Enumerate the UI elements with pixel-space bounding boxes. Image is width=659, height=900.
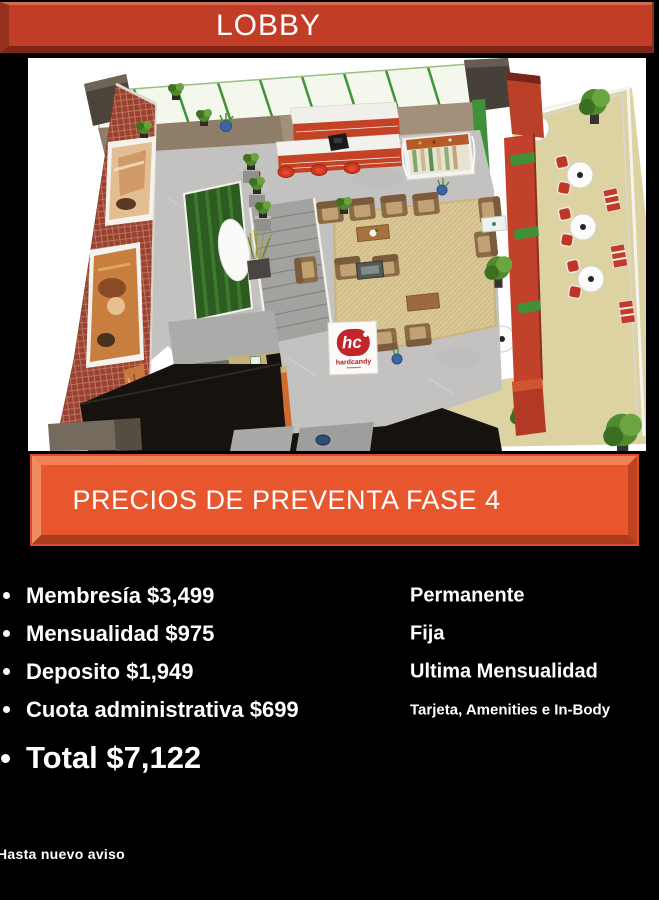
pricing-row: Membresía $3,499 Permanente	[0, 577, 659, 615]
pricing-item-label: Cuota administrativa $699	[26, 697, 299, 723]
subtitle-banner: PRECIOS DE PREVENTA FASE 4	[32, 456, 637, 544]
wall-picture-spa	[86, 242, 144, 368]
logo-brand-text: hardcandy	[336, 358, 372, 366]
pricing-row: Mensualidad $975 Fija	[0, 615, 659, 653]
pricing-total-row: Total $7,122	[0, 735, 659, 781]
side-table	[481, 216, 506, 232]
reception-monitor	[250, 356, 261, 365]
bullet-icon	[3, 706, 10, 713]
pricing-item-label: Deposito $1,949	[26, 659, 194, 685]
title-banner-label: LOBBY	[0, 5, 590, 46]
floorplan-image: hc hardcandy	[28, 58, 646, 451]
pricing-item-note: Tarjeta, Amenities e In-Body	[410, 702, 610, 719]
pricing-item-note: Ultima Mensualidad	[410, 661, 598, 684]
wall-picture-massage	[105, 136, 156, 226]
title-banner: LOBBY	[0, 2, 652, 53]
coffee-table	[356, 224, 389, 241]
subtitle-banner-label: PRECIOS DE PREVENTA FASE 4	[0, 465, 580, 535]
pricing-row: Deposito $1,949 Ultima Mensualidad	[0, 653, 659, 691]
pricing-item-note: Permanente	[410, 585, 525, 608]
pricing-item-label: Mensualidad $975	[26, 621, 214, 647]
pricing-row: Cuota administrativa $699 Tarjeta, Ameni…	[0, 691, 659, 729]
bullet-icon	[3, 630, 10, 637]
footnote: Hasta nuevo aviso	[0, 846, 125, 862]
pricing-total-label: Total $7,122	[26, 740, 201, 776]
brand-logo: hc hardcandy	[328, 321, 378, 375]
logo-monogram: hc	[342, 333, 363, 353]
bullet-icon	[3, 592, 10, 599]
display-case	[402, 132, 475, 180]
bullet-icon	[1, 754, 10, 763]
bullet-icon	[3, 668, 10, 675]
coffee-table	[406, 293, 439, 311]
floorplan-svg: hc hardcandy	[28, 58, 646, 451]
pricing-item-note: Fija	[410, 623, 444, 646]
pricing-list: Membresía $3,499 Permanente Mensualidad …	[0, 577, 659, 781]
pricing-item-label: Membresía $3,499	[26, 583, 214, 609]
glass-table	[356, 261, 384, 280]
